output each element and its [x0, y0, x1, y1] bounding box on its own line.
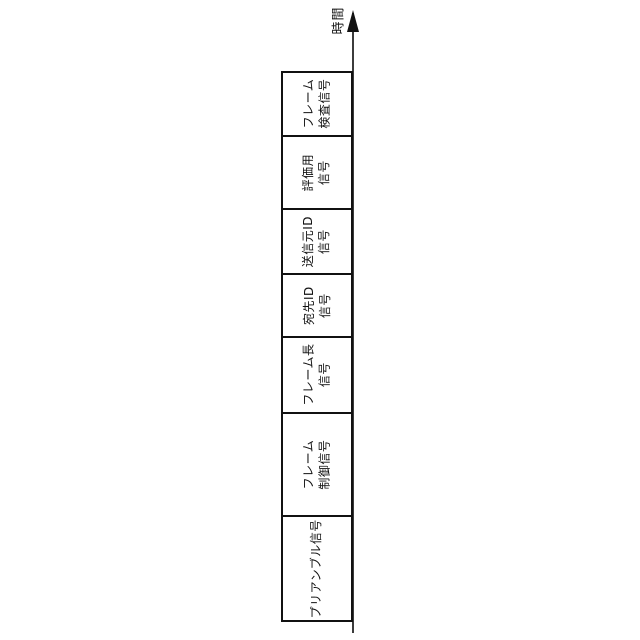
frame-field-frame-check-signal: フレーム 検査信号: [281, 71, 353, 137]
time-axis-label: 時間: [330, 6, 345, 36]
frame-structure: フレーム 検査信号 評価用 信号 送信元ID 信号 宛先ID 信号 フレ: [281, 71, 353, 622]
frame-field-destination-id-signal: 宛先ID 信号: [281, 275, 353, 338]
field-label-line: 制御信号: [317, 439, 333, 489]
frame-field-label: 送信元ID 信号: [301, 216, 332, 267]
field-label-line: フレーム: [301, 79, 317, 129]
frame-structure-diagram: 時間 フレーム 検査信号 評価用 信号 送信元ID 信号 宛先ID 信号: [0, 0, 640, 640]
field-label-line: フレーム長: [301, 344, 317, 406]
frame-field-label: フレーム長 信号: [301, 344, 332, 406]
frame-field-label: フレーム 検査信号: [301, 79, 332, 129]
field-label-line: 信号: [317, 216, 333, 267]
frame-field-frame-control-signal: フレーム 制御信号: [281, 414, 353, 517]
up-arrow-icon: [347, 10, 359, 32]
field-label-line: 検査信号: [317, 79, 333, 129]
field-label-line: プリアンブル信号: [309, 519, 325, 618]
field-label-line: フレーム: [301, 439, 317, 489]
frame-field-label: フレーム 制御信号: [301, 439, 332, 489]
frame-field-source-id-signal: 送信元ID 信号: [281, 210, 353, 275]
field-label-line: 信号: [317, 154, 333, 192]
frame-field-label: プリアンブル信号: [309, 519, 325, 618]
frame-field-evaluation-signal: 評価用 信号: [281, 137, 353, 210]
frame-field-frame-length-signal: フレーム長 信号: [281, 338, 353, 414]
frame-field-label: 宛先ID 信号: [301, 286, 332, 325]
field-label-line: 評価用: [301, 154, 317, 192]
field-label-line: 宛先ID: [301, 286, 317, 325]
frame-field-preamble-signal: プリアンブル信号: [281, 517, 353, 622]
frame-field-label: 評価用 信号: [301, 154, 332, 192]
field-label-line: 送信元ID: [301, 216, 317, 267]
field-label-line: 信号: [317, 286, 333, 325]
field-label-line: 信号: [317, 344, 333, 406]
